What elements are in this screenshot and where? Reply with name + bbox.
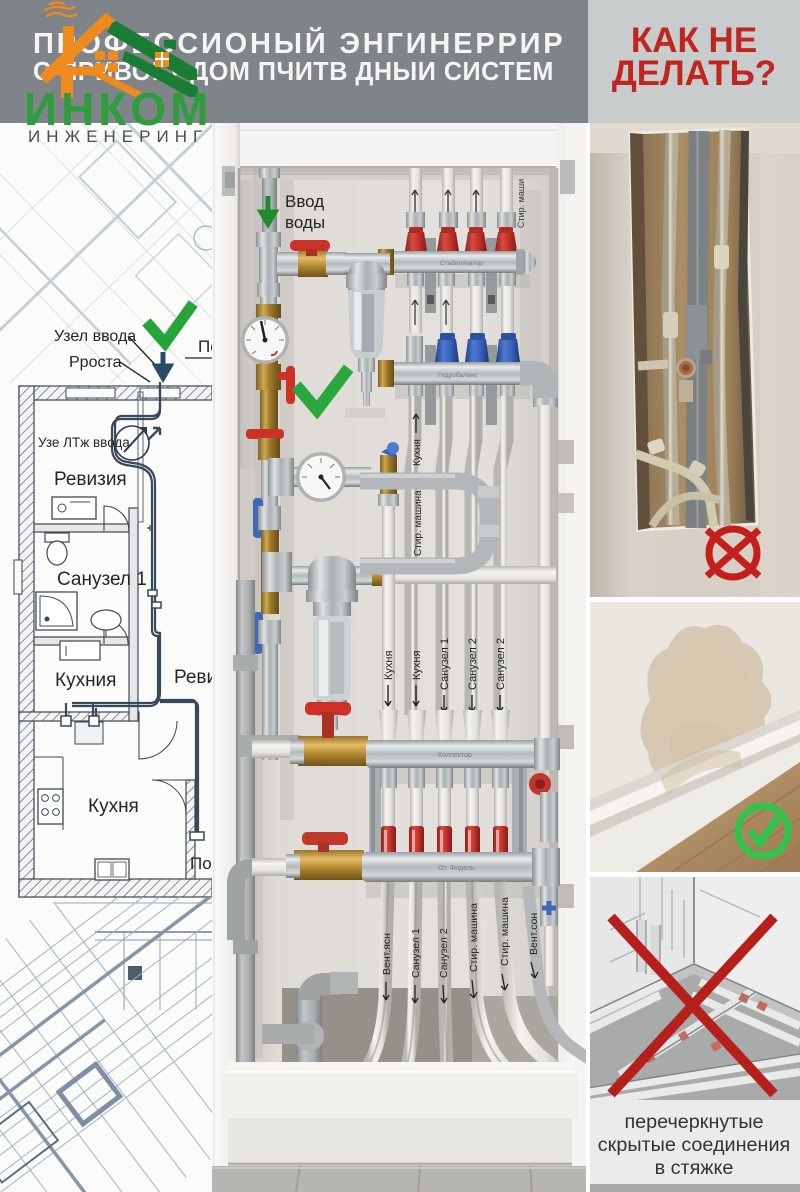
- svg-text:Вент.ясн: Вент.ясн: [381, 933, 393, 975]
- svg-text:Санузел 1: Санузел 1: [410, 928, 422, 978]
- svg-text:перечеркнутые: перечеркнутые: [624, 1111, 763, 1133]
- svg-text:Рроста: Рроста: [69, 354, 122, 371]
- svg-text:Санузел 1: Санузел 1: [57, 569, 147, 590]
- svg-text:По: По: [198, 337, 212, 356]
- svg-text:Ревизия: Ревизия: [54, 469, 127, 490]
- svg-text:Стир. машина: Стир. машина: [468, 903, 480, 972]
- svg-text:Ревиз: Ревиз: [174, 667, 212, 688]
- svg-text:Кухня: Кухня: [88, 796, 139, 817]
- svg-text:Узел ввода: Узел ввода: [54, 328, 136, 345]
- svg-text:Стир. машина: Стир. машина: [499, 897, 511, 966]
- svg-text:скрытые соединения: скрытые соединения: [598, 1134, 790, 1156]
- svg-text:По: По: [190, 854, 212, 873]
- svg-text:в стяжке: в стяжке: [655, 1157, 734, 1179]
- svg-text:Кухния: Кухния: [55, 670, 116, 691]
- svg-text:Санузел 2: Санузел 2: [438, 928, 450, 978]
- svg-text:Узе ЛТж ввода: Узе ЛТж ввода: [38, 435, 130, 450]
- svg-text:Вент.сон: Вент.сон: [528, 913, 540, 955]
